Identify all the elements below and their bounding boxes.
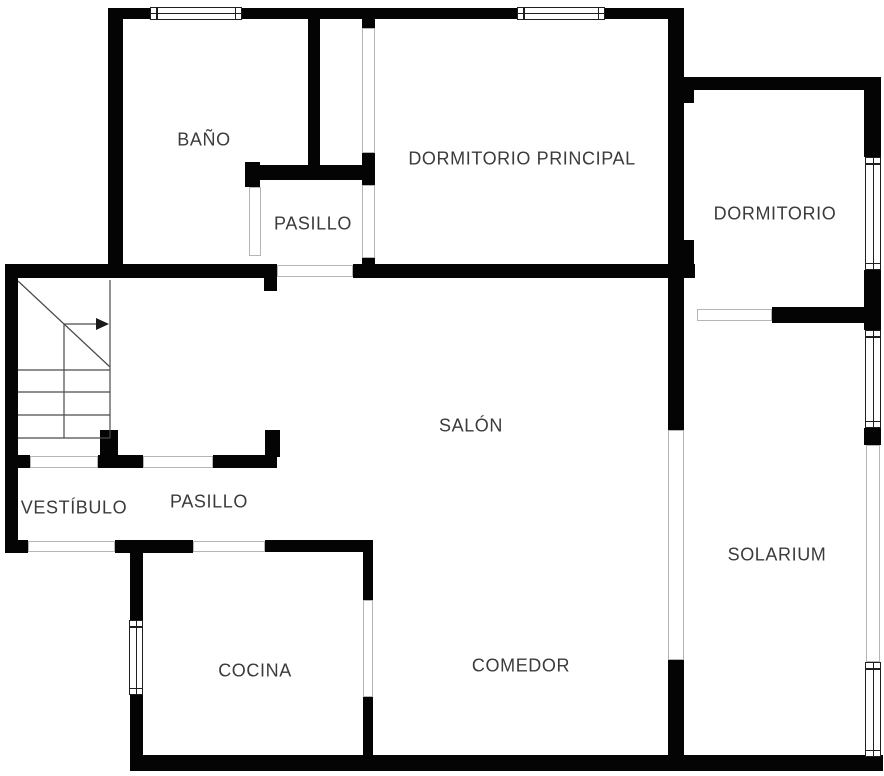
room-label-vestibulo: VESTÍBULO [21, 498, 127, 519]
room-label-cocina: COCINA [218, 661, 292, 682]
room-label-pasillo-superior: PASILLO [274, 214, 352, 235]
room-label-comedor: COMEDOR [472, 656, 570, 677]
floor-plan: BAÑODORMITORIO PRINCIPALPASILLODORMITORI… [0, 0, 884, 776]
room-label-bano: BAÑO [177, 130, 230, 151]
room-label-pasillo-inferior: PASILLO [170, 492, 248, 513]
room-label-solarium: SOLARIUM [728, 545, 827, 566]
room-label-dormitorio: DORMITORIO [714, 204, 837, 225]
room-label-salon: SALÓN [439, 416, 503, 437]
staircase-symbol [0, 0, 884, 776]
room-label-dormitorio-principal: DORMITORIO PRINCIPAL [408, 149, 635, 170]
stair-direction-arrowhead [96, 318, 109, 330]
